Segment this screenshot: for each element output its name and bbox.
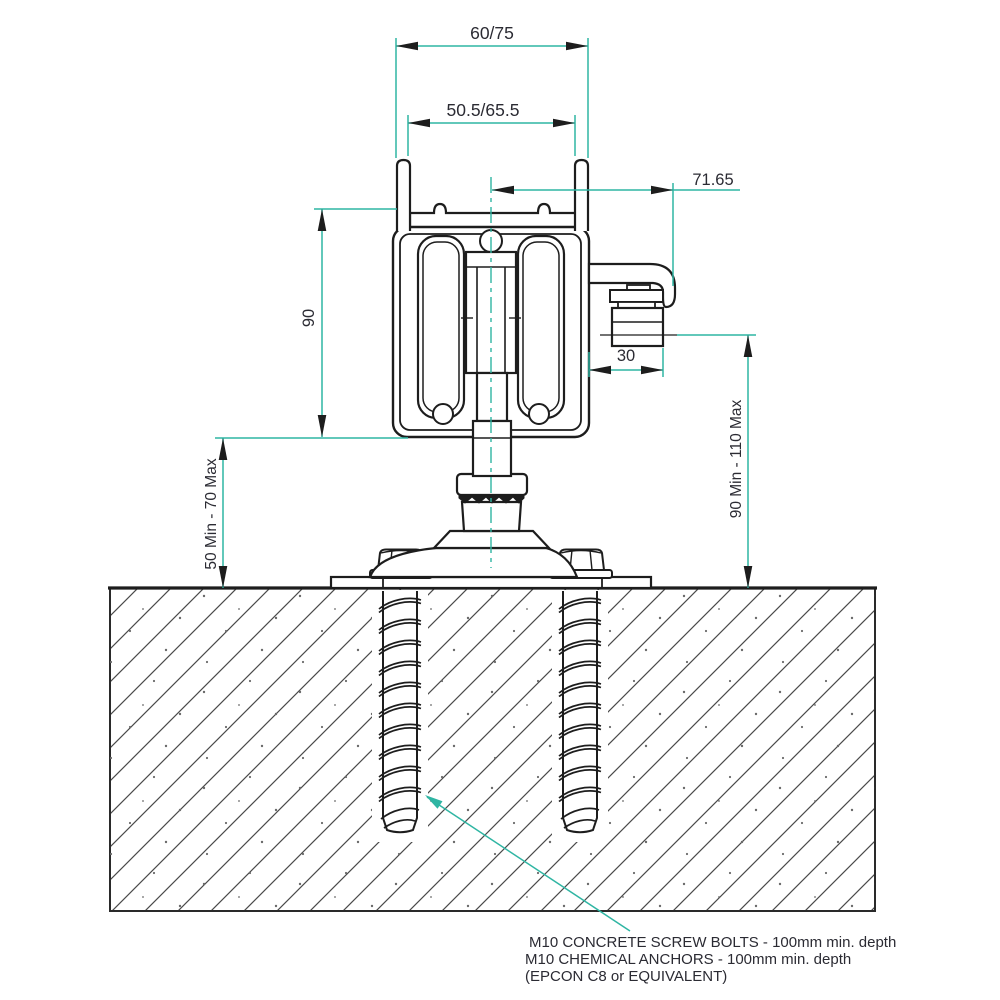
anchor-annotation: M10 CONCRETE SCREW BOLTS - 100mm min. de… [525, 934, 896, 985]
dim-left-clearance: 50 Min - 70 Max [203, 458, 220, 569]
dim-top-inner-width: 50.5/65.5 [447, 100, 520, 120]
lock-nut [457, 474, 527, 495]
dim-track-height: 90 [300, 309, 318, 327]
concrete-screw-left [372, 590, 428, 842]
technical-drawing-page: 60/75 50.5/65.5 71.65 90 30 50 Min - 70 … [0, 0, 1000, 1000]
hanger-stem [473, 373, 511, 476]
annotation-line-2: M10 CHEMICAL ANCHORS - 100mm min. depth [525, 951, 851, 968]
roller-wheel-right [518, 236, 564, 418]
roller-wheel-left [418, 236, 464, 418]
dim-right-clearance: 90 Min - 110 Max [728, 399, 745, 518]
dim-roller-offset: 30 [617, 347, 635, 365]
bottom-boss-right [529, 404, 549, 424]
drawing-canvas: 60/75 50.5/65.5 71.65 90 30 50 Min - 70 … [0, 0, 1000, 1000]
concrete-block [108, 588, 877, 911]
concrete-screw-right [552, 590, 608, 842]
bottom-boss-left [433, 404, 453, 424]
annotation-line-3: (EPCON C8 or EQUIVALENT) [525, 968, 727, 985]
adjustable-mount [370, 474, 577, 577]
annotation-line-1: M10 CONCRETE SCREW BOLTS - 100mm min. de… [529, 934, 896, 951]
right-ear [575, 160, 588, 231]
dim-bracket-offset: 71.65 [692, 171, 733, 189]
left-ear [397, 160, 410, 231]
dim-top-outer-width: 60/75 [470, 23, 514, 43]
